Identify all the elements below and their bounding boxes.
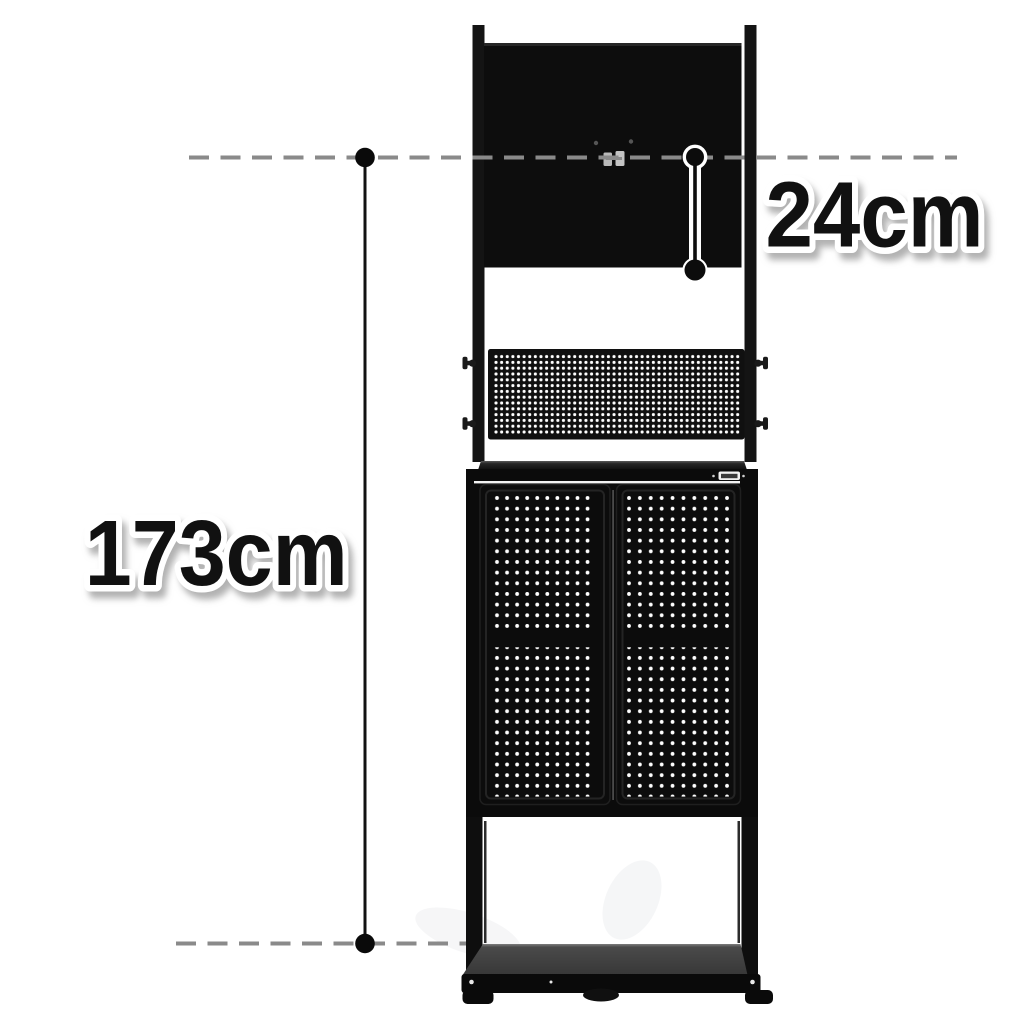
svg-text:24cm: 24cm (766, 162, 984, 266)
svg-text:173cm: 173cm (85, 501, 348, 604)
